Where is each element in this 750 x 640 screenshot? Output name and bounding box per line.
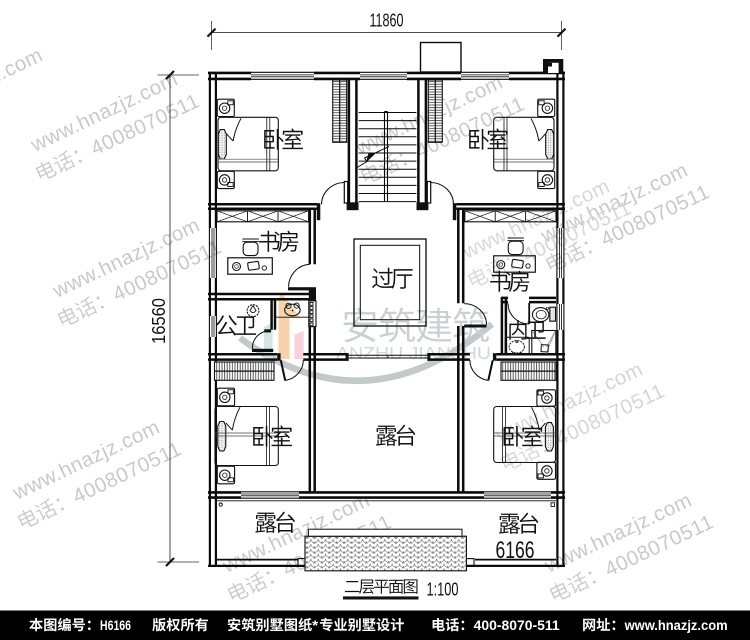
svg-text:400-8070-511: 400-8070-511	[474, 618, 560, 633]
svg-text:1:100: 1:100	[427, 580, 459, 600]
svg-text:H6166: H6166	[100, 618, 131, 633]
svg-text:www.hnazjz.com: www.hnazjz.com	[624, 618, 728, 633]
svg-text:16560: 16560	[149, 298, 169, 344]
svg-text:11860: 11860	[370, 11, 404, 31]
svg-text:*: *	[312, 618, 319, 633]
svg-text:6166: 6166	[496, 537, 535, 564]
